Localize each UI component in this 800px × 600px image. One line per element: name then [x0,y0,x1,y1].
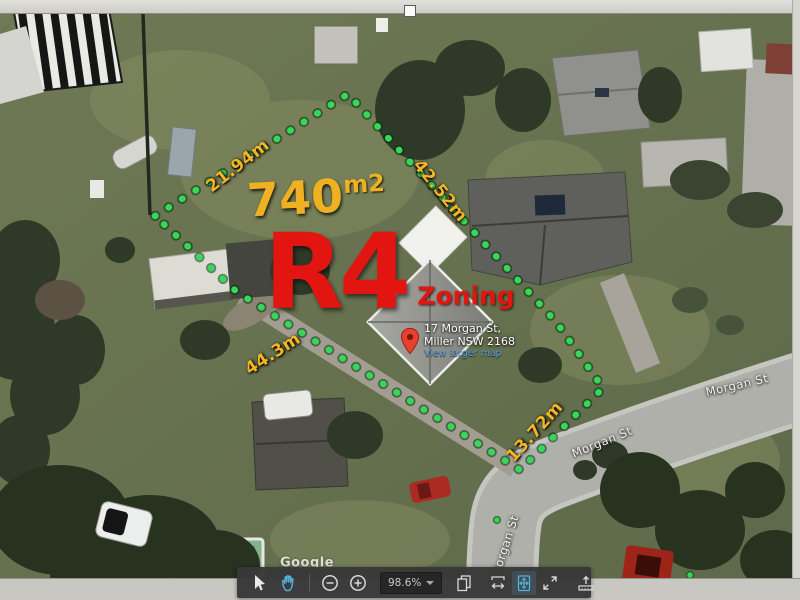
map-marker[interactable]: 17 Morgan St, Miller NSW 2168 View large… [400,320,515,360]
fullscreen-icon [540,573,560,593]
zoom-out-button[interactable] [318,571,342,595]
fit-width-icon [488,573,508,593]
viewer-toolbar: 98.6% [237,567,591,598]
fit-width-button[interactable] [486,571,510,595]
zoom-level-value: 98.6% [388,577,421,589]
location-pin-icon[interactable] [400,326,420,356]
zoom-level-dropdown[interactable]: 98.6% [380,572,442,594]
hand-icon [279,573,299,593]
cursor-icon [249,573,269,593]
splitter-handle[interactable] [404,5,416,17]
marker-address-line2: Miller NSW 2168 [424,335,515,348]
select-tool-button[interactable] [247,571,271,595]
export-button[interactable] [574,571,598,595]
window-edge-right [792,0,800,600]
view-larger-map-link[interactable]: View larger map [424,348,515,360]
window-top-splitter [0,0,800,14]
fit-page-icon [514,573,534,593]
chevron-down-icon [426,581,434,585]
copy-pages-button[interactable] [452,571,476,595]
zoom-in-button[interactable] [346,571,370,595]
marker-address-line1: 17 Morgan St, [424,322,515,335]
image-viewer-window: 21.94m 42.52m 44.3m 13.72m 740 m2 R4 Zon… [0,0,800,600]
export-measure-icon [575,573,597,593]
fit-page-button[interactable] [512,571,536,595]
toolbar-separator [309,574,310,592]
copy-pages-icon [454,573,474,593]
aerial-map[interactable] [0,0,800,600]
zoom-in-icon [348,573,368,593]
fullscreen-button[interactable] [538,571,562,595]
pan-tool-button[interactable] [277,571,301,595]
zoom-out-icon [320,573,340,593]
